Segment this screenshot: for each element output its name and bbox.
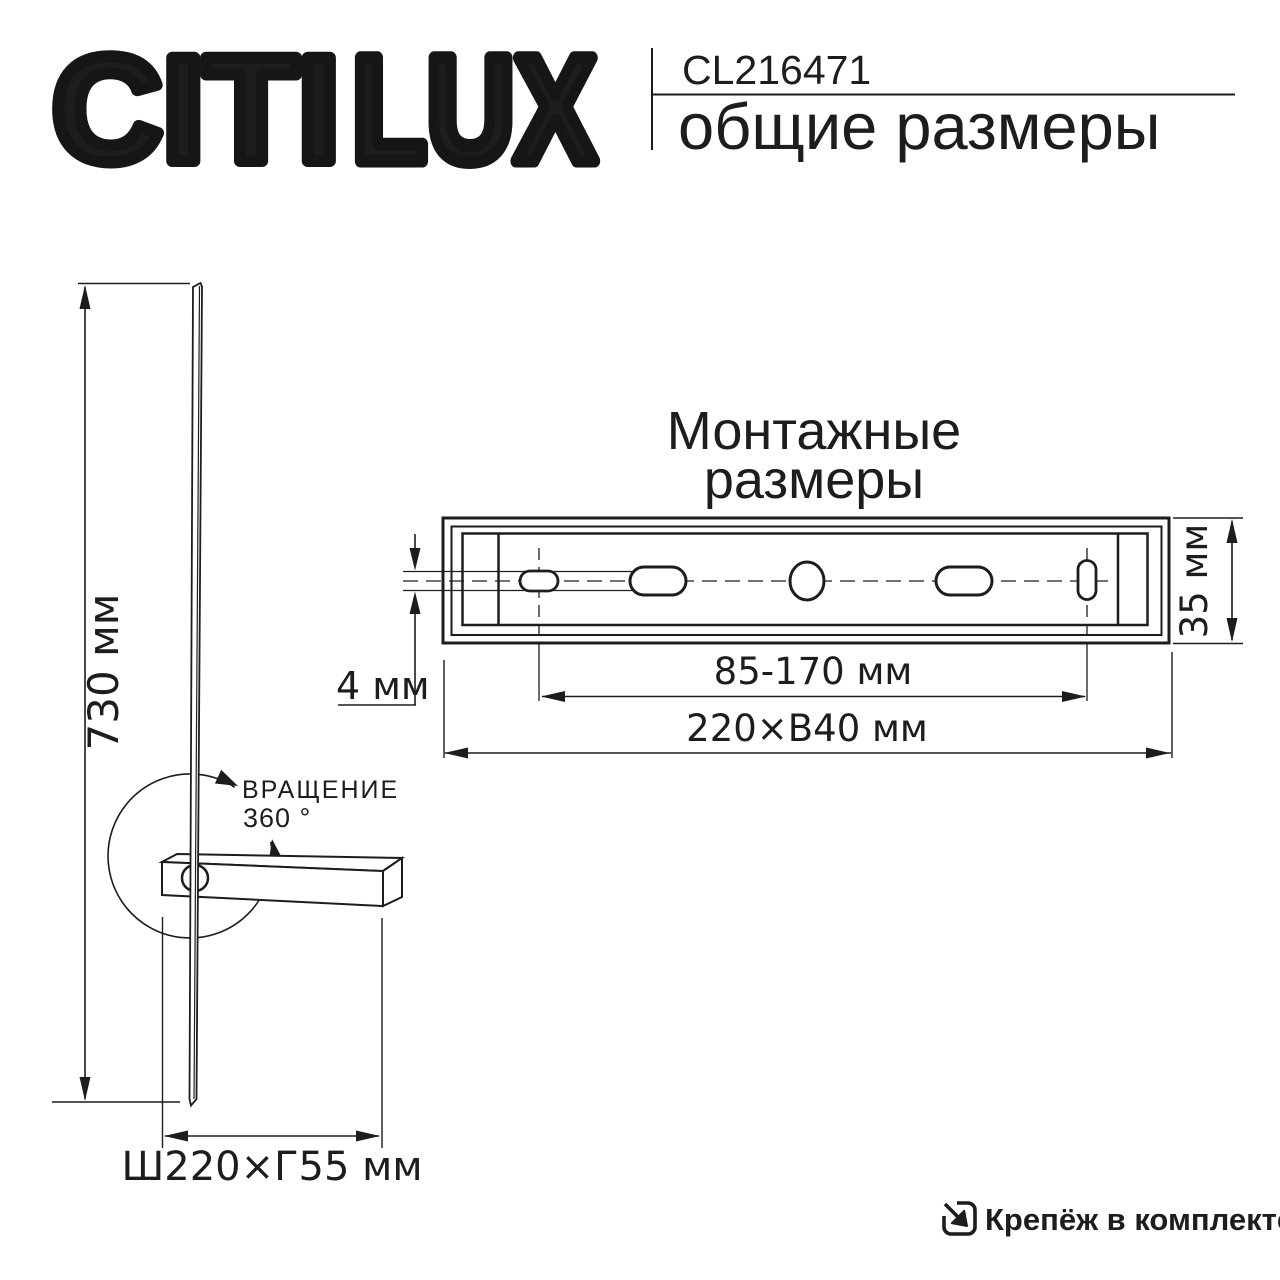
fasteners-included-label: Крепёж в комплекте (985, 1202, 1280, 1237)
hole-spacing-label: 85-170 мм (714, 650, 913, 693)
light-rod (190, 283, 203, 1106)
footprint-dimension: Ш220×Г55 мм (122, 917, 423, 1190)
rod-body (190, 283, 203, 1106)
arrowhead-left (164, 1131, 188, 1142)
arrowhead-up (80, 285, 91, 309)
mount-hole-3 (790, 562, 824, 600)
mount-hole-2 (630, 567, 686, 595)
arrowhead-down (410, 548, 421, 571)
mount-hole-5 (1078, 561, 1096, 600)
arrowhead-left (444, 748, 468, 759)
plate-height-dimension: 35 мм (1173, 518, 1243, 644)
height-label: 730 мм (79, 594, 128, 751)
arrowhead-right (356, 1131, 380, 1142)
arrowhead-left (541, 691, 565, 702)
arrowhead-up (410, 592, 421, 615)
mount-hole-1 (520, 571, 558, 591)
header: CITI LUX CL216471 общие размеры (52, 25, 1235, 193)
arrowhead-right (1062, 691, 1086, 702)
footprint-label: Ш220×Г55 мм (122, 1144, 423, 1190)
sheet-subtitle: общие размеры (678, 90, 1160, 163)
slot-height-dimension: 4 мм (336, 534, 430, 708)
plate-height-label: 35 мм (1173, 524, 1216, 639)
technical-drawing-canvas: CITI LUX CL216471 общие размеры 730 мм В… (0, 0, 1280, 1280)
plate-width-label: 220×В40 мм (686, 707, 928, 750)
logo-solid-part: CITI (52, 25, 340, 193)
arc-arrowhead-top (215, 770, 241, 793)
rotation-annotation: ВРАЩЕНИЕ 360 ° (108, 770, 399, 938)
arrowhead-down (1227, 618, 1238, 642)
arrowhead-up (1227, 519, 1238, 543)
citilux-logo: CITI LUX (52, 25, 596, 193)
fasteners-included-icon (936, 1195, 975, 1234)
mounting-title-line2: размеры (704, 450, 924, 510)
slot-height-label: 4 мм (336, 664, 430, 708)
rotation-label-line1: ВРАЩЕНИЕ (242, 776, 399, 804)
mount-hole-4 (936, 567, 992, 595)
height-dimension-730: 730 мм (52, 284, 190, 1103)
mounting-drawing: Монтажные размеры (336, 401, 1243, 759)
footer-note: Крепёж в комплекте (936, 1195, 1280, 1237)
arrowhead-down (80, 1077, 91, 1101)
dimension-sheet: CITI LUX CL216471 общие размеры 730 мм В… (0, 0, 1280, 1280)
arrowhead-right (1146, 748, 1170, 759)
logo-outline-part: LUX (352, 25, 596, 193)
product-code: CL216471 (682, 47, 871, 93)
side-view-drawing: 730 мм ВРАЩЕНИЕ 360 ° (52, 283, 423, 1190)
hole-spacing-dimension: 85-170 мм (541, 650, 1086, 702)
rotation-label-line2: 360 ° (243, 803, 311, 833)
